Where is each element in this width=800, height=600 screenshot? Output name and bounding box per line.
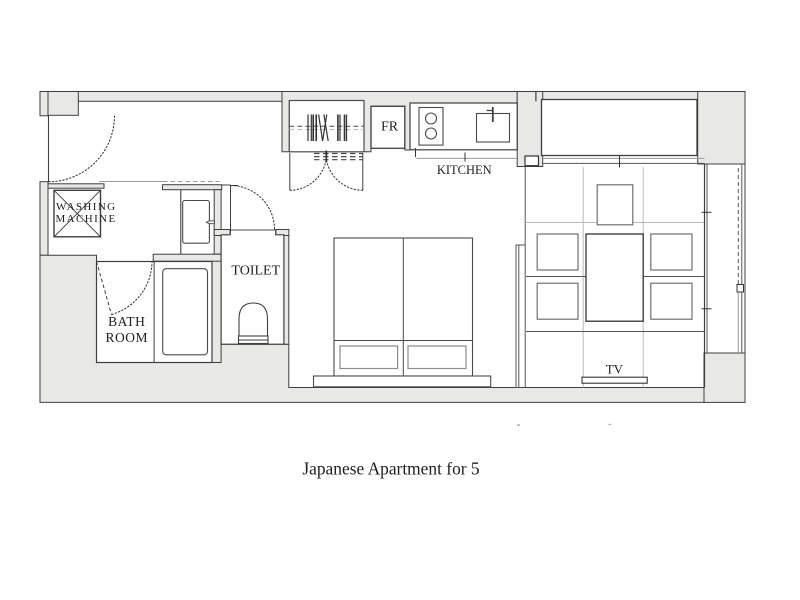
svg-text:MACHINE: MACHINE (56, 213, 117, 225)
svg-text:Japanese Apartment for 5: Japanese Apartment for 5 (302, 459, 480, 479)
svg-text:ROOM: ROOM (105, 330, 148, 345)
svg-text:TOILET: TOILET (231, 263, 280, 278)
svg-text:TV: TV (606, 362, 624, 377)
svg-text:FR: FR (381, 120, 399, 135)
svg-text:WASHING: WASHING (56, 201, 117, 213)
svg-text:BATH: BATH (108, 314, 145, 329)
svg-text:KITCHEN: KITCHEN (437, 163, 492, 177)
